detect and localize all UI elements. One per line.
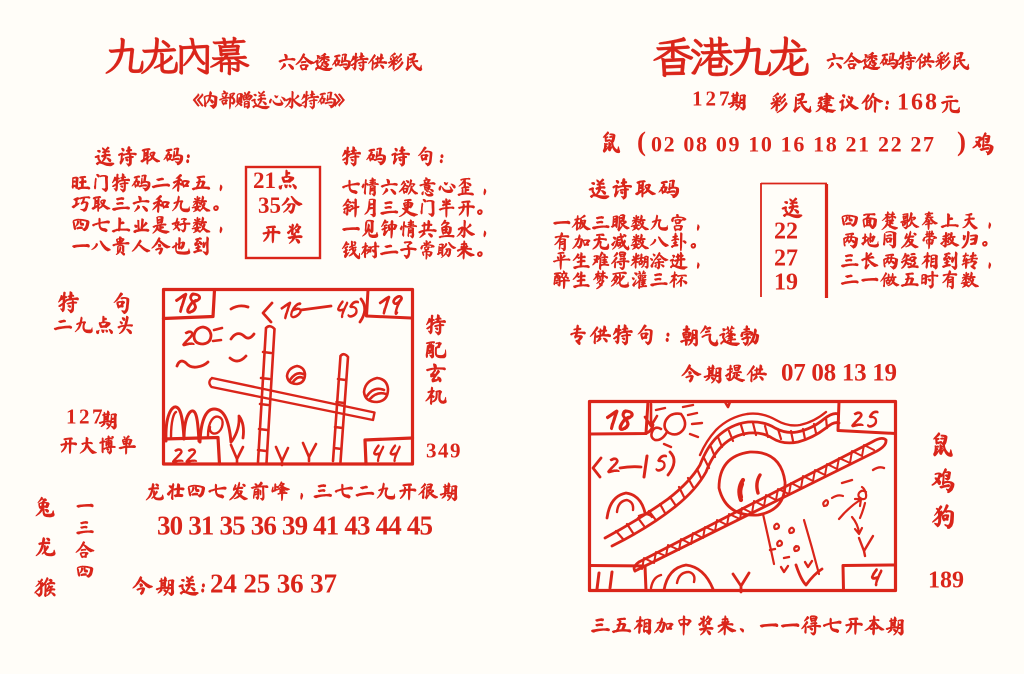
svg-text:): ) — [957, 126, 966, 156]
svg-text:22: 22 — [774, 219, 798, 245]
svg-text:07 08 13 19: 07 08 13 19 — [781, 360, 897, 387]
svg-text:349: 349 — [426, 439, 462, 463]
svg-text:19: 19 — [774, 270, 798, 296]
svg-text:35: 35 — [258, 193, 281, 218]
svg-text:(: ( — [637, 126, 646, 156]
svg-text:02 08 09 10 16 18 21 22 27: 02 08 09 10 16 18 21 22 27 — [651, 131, 934, 156]
svg-text:189: 189 — [928, 568, 964, 594]
svg-text:24 25 36 37: 24 25 36 37 — [210, 569, 337, 599]
svg-text:127: 127 — [66, 405, 105, 429]
svg-text:21: 21 — [253, 168, 276, 193]
svg-text:30 31 35 36 39 41 43 44 45: 30 31 35 36 39 41 43 44 45 — [157, 511, 433, 541]
svg-text:127: 127 — [692, 87, 733, 111]
svg-text:27: 27 — [774, 246, 798, 272]
svg-text:168: 168 — [897, 89, 939, 115]
